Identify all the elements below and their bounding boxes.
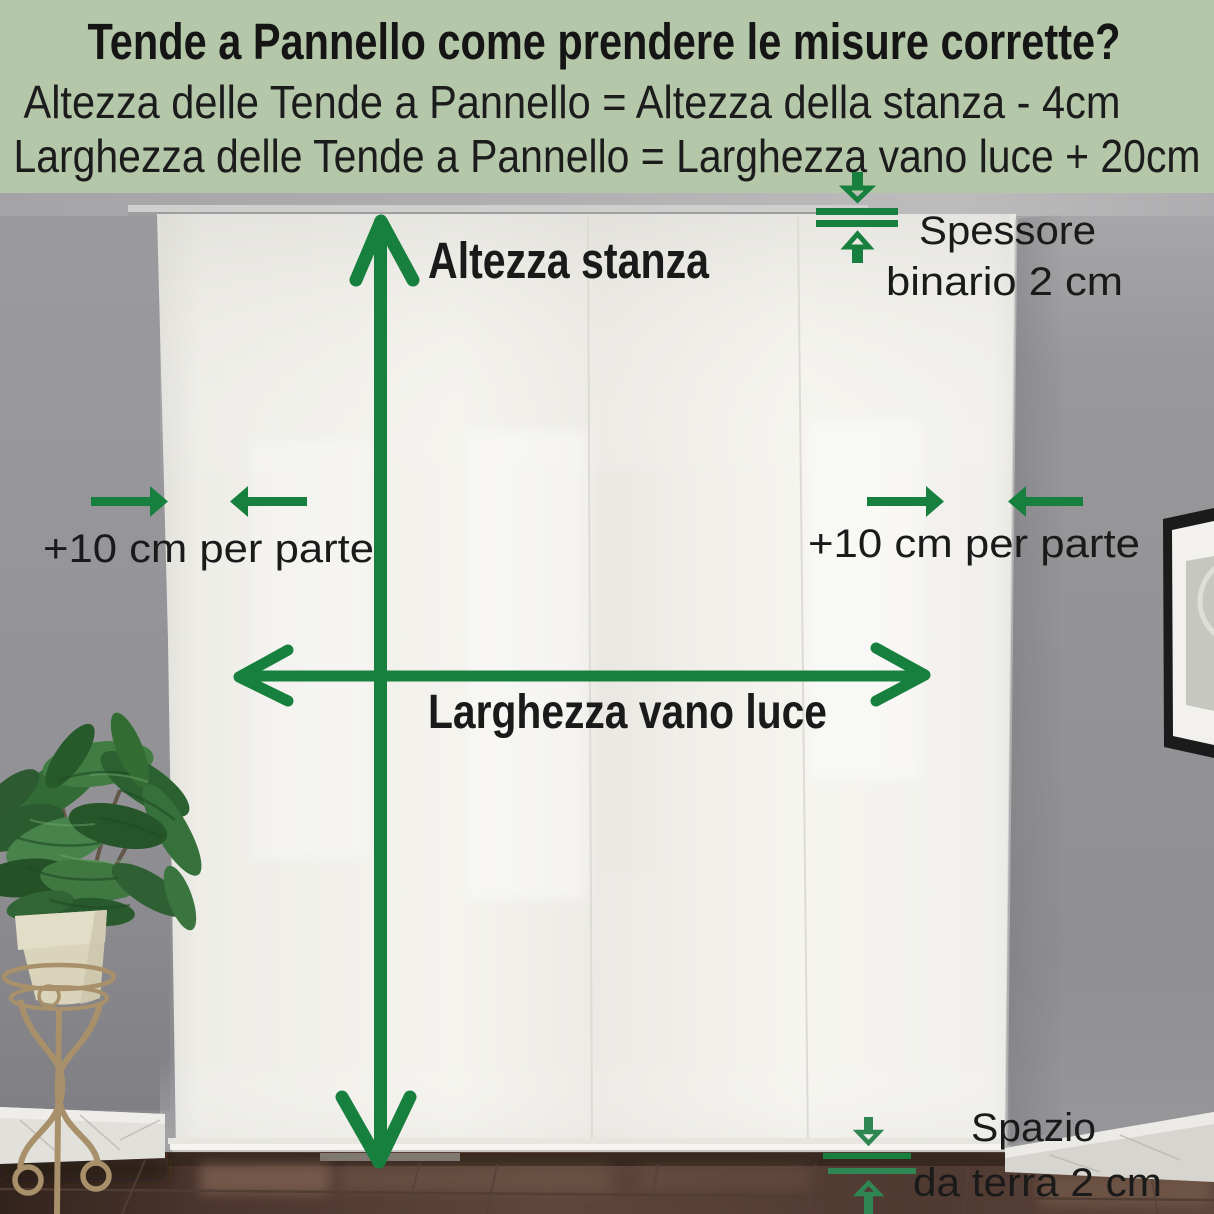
svg-text:+10 cm per parte: +10 cm per parte: [808, 522, 1140, 566]
svg-text:Larghezza delle Tende a Pannel: Larghezza delle Tende a Pannello = Largh…: [14, 130, 1201, 182]
svg-text:Altezza stanza: Altezza stanza: [428, 232, 710, 289]
svg-text:Spazio: Spazio: [971, 1106, 1096, 1150]
svg-text:Spessore: Spessore: [919, 209, 1096, 253]
svg-text:da terra 2 cm: da terra 2 cm: [913, 1161, 1162, 1205]
svg-text:Larghezza vano luce: Larghezza vano luce: [428, 686, 827, 739]
svg-text:Altezza delle Tende a Pannello: Altezza delle Tende a Pannello = Altezza…: [24, 76, 1121, 128]
svg-text:+10 cm per parte: +10 cm per parte: [43, 527, 374, 571]
svg-text:Tende a Pannello come prendere: Tende a Pannello come prendere le misure…: [88, 13, 1121, 70]
svg-text:binario 2 cm: binario 2 cm: [886, 260, 1123, 304]
